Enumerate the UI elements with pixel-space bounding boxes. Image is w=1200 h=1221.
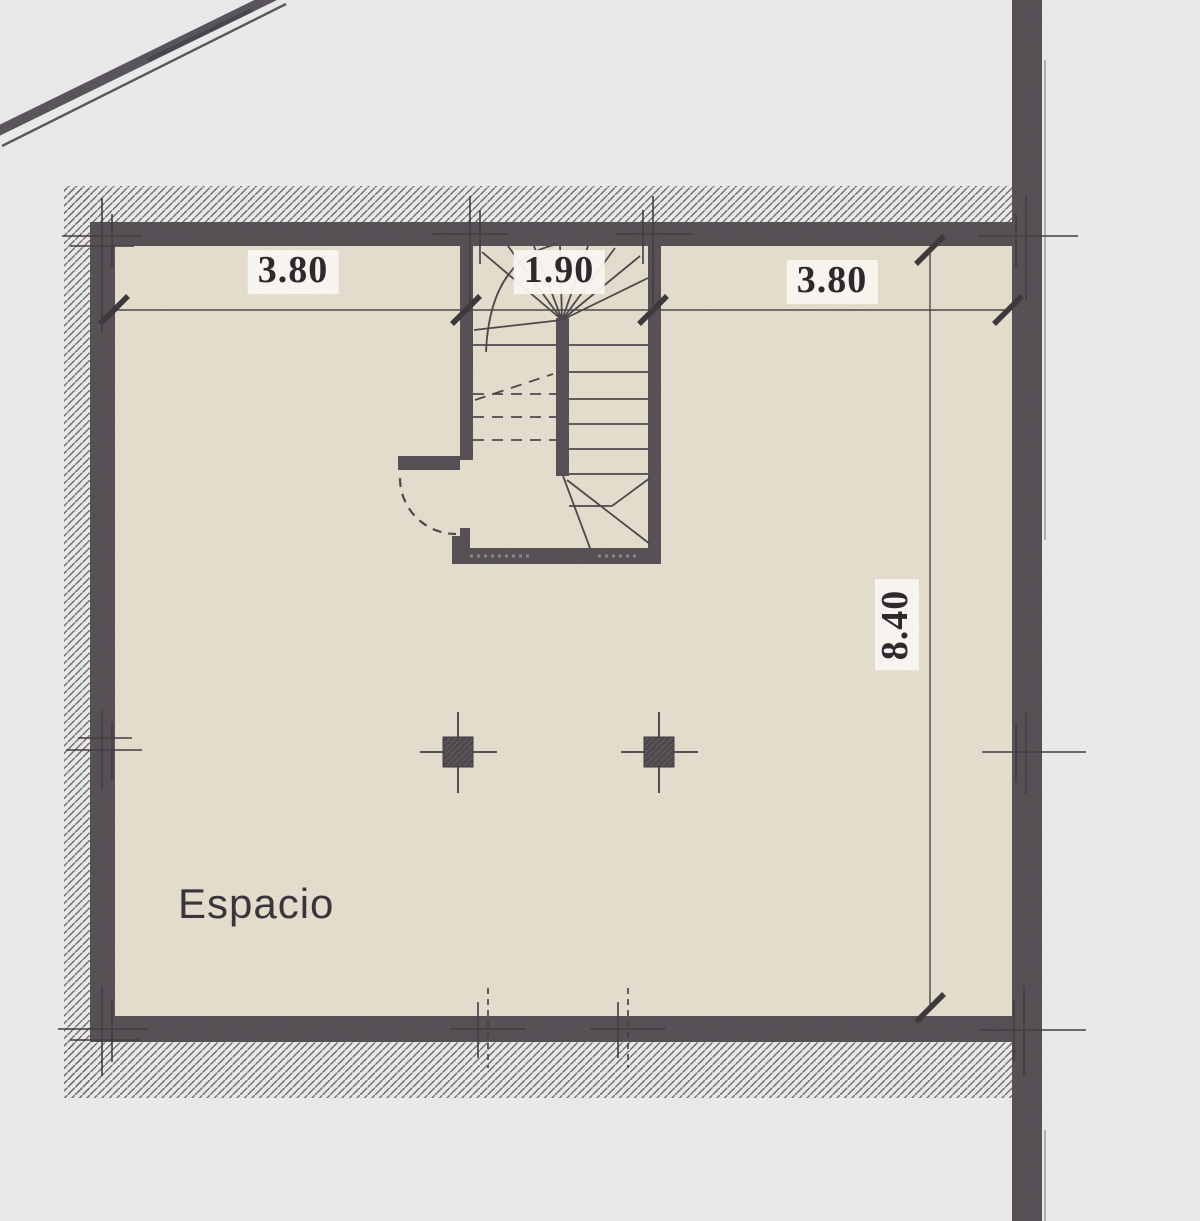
dimension-label-top-center: 1.90 <box>514 250 605 294</box>
floor-plan-drawing <box>0 0 1200 1221</box>
dimension-label-right: 8.40 <box>875 580 919 671</box>
grain-overlay <box>0 0 1200 1221</box>
floor-plan-canvas: 3.80 1.90 3.80 8.40 Espacio <box>0 0 1200 1221</box>
dimension-label-top-right: 3.80 <box>787 260 878 304</box>
dimension-label-top-left: 3.80 <box>248 250 339 294</box>
room-label: Espacio <box>178 880 334 928</box>
